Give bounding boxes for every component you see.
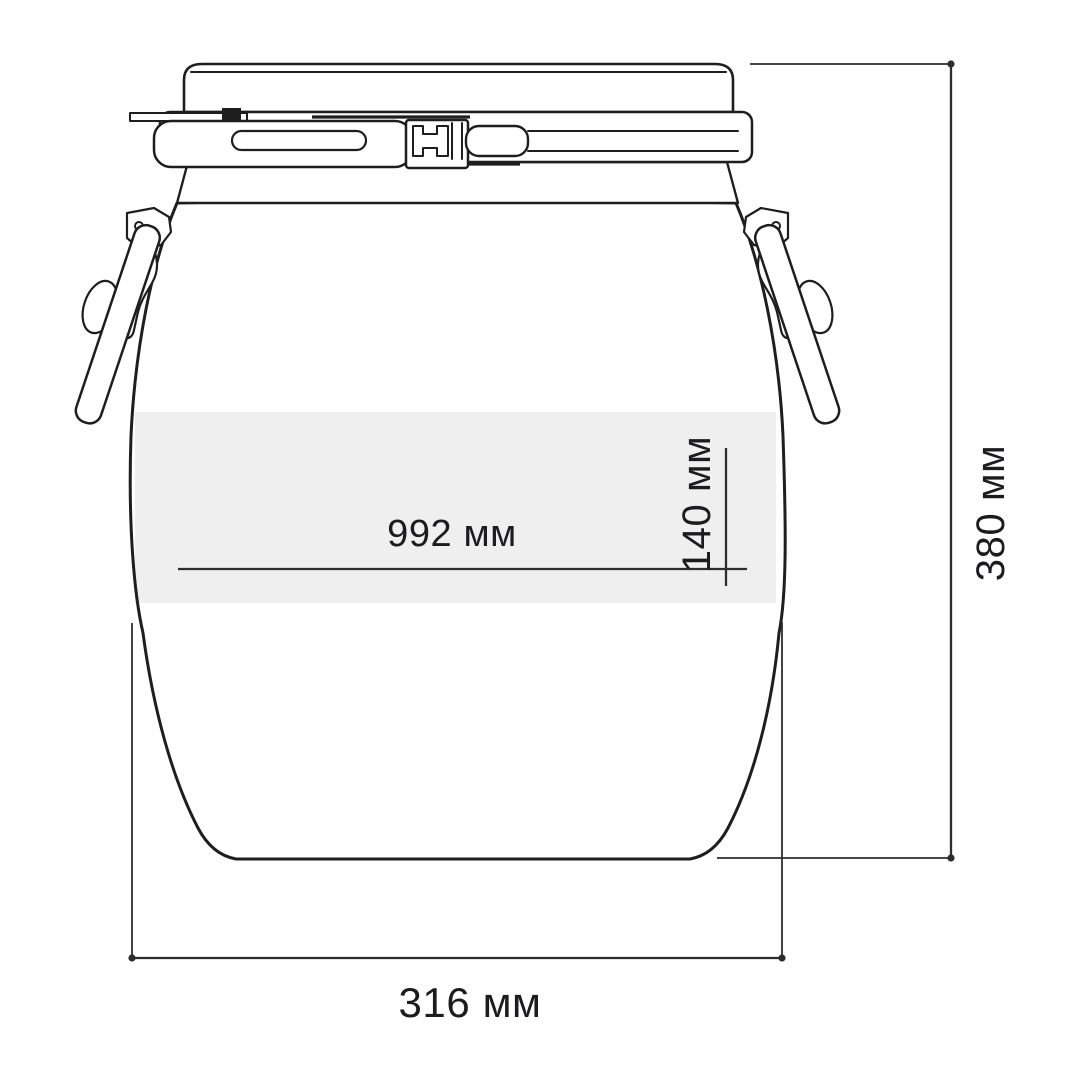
inner-band-dimension-label: 140 мм <box>677 436 717 572</box>
dim-dot-top-right <box>947 60 954 67</box>
dim-dot-bottom-right <box>947 854 954 861</box>
dim-dot-bottom-left <box>128 954 135 961</box>
dim-dot-bottom-mid <box>778 954 785 961</box>
height-dimension-label: 380 мм <box>971 445 1011 581</box>
latch-notch <box>222 108 241 120</box>
dimension-drawing: 992 мм 140 мм 380 мм 316 мм <box>0 0 1084 1084</box>
girth-dimension-label: 992 мм <box>178 515 726 553</box>
bottom-width-dimension-label: 316 мм <box>132 982 808 1024</box>
latch-catch <box>466 126 528 156</box>
lever-slot <box>232 131 366 150</box>
